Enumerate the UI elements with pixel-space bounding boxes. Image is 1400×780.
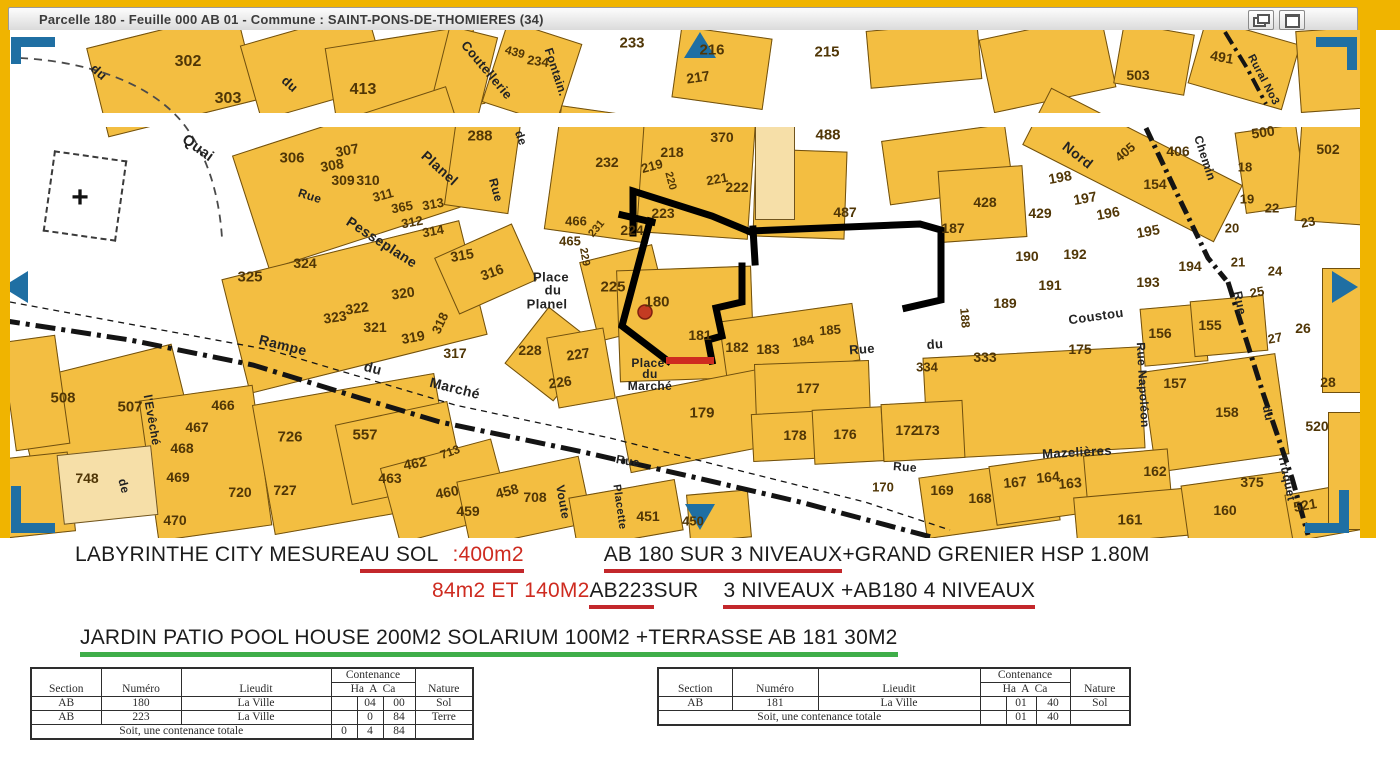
selected-parcel-outline [622, 215, 652, 222]
street-name-label: du [363, 359, 384, 377]
parcel-number-label: 156 [1148, 326, 1171, 340]
parcel-number-label: 508 [50, 391, 75, 406]
parcel-number-label: 18 [1238, 161, 1252, 174]
parcel-number-label: 161 [1117, 513, 1142, 528]
parcel-number-label: 488 [815, 128, 840, 143]
parcel-number-label: 187 [941, 221, 964, 235]
parcel-number-label: 324 [293, 256, 316, 270]
parcel-number-label: 169 [930, 483, 953, 497]
col-header-lieudit: Lieudit [181, 668, 331, 697]
parcel-number-label: 306 [279, 151, 304, 166]
parcel-number-label: 154 [1143, 177, 1166, 191]
parcel-number-label: 167 [1003, 474, 1027, 490]
parcel-number-label: 194 [1178, 259, 1201, 273]
table-cell: 04 [357, 697, 383, 711]
parcel-number-label: 158 [1215, 405, 1238, 419]
pan-arrow-left[interactable] [10, 271, 28, 303]
table-cell: 180 [101, 697, 181, 711]
parcel-number-label: 190 [1015, 249, 1038, 263]
col-header-contenance: Contenance [980, 668, 1070, 683]
parcel-number-label: 429 [1028, 206, 1051, 220]
footer-ha: 0 [331, 725, 357, 740]
selected-parcel-outline [753, 229, 755, 262]
parcel-number-label: 322 [344, 299, 369, 316]
restore-icon[interactable] [1248, 10, 1274, 30]
parcel-number-label: 232 [595, 155, 618, 169]
parcel-number-label: 462 [402, 454, 427, 472]
street-name-label: Rue [893, 460, 918, 474]
corner-marker [16, 486, 55, 528]
parcel-number-label: 319 [400, 328, 425, 346]
table-cell [331, 697, 357, 711]
parcel-number-label: 179 [689, 406, 714, 421]
parcel-number-label: 27 [1267, 330, 1284, 345]
title-bar: Parcelle 180 - Feuille 000 AB 01 - Commu… [8, 7, 1358, 32]
parcel-number-label: 470 [163, 513, 186, 527]
parcel-number-label: 164 [1036, 469, 1060, 485]
parcel-number-label: 507 [117, 400, 142, 415]
parcel-number-label: 198 [1047, 168, 1072, 186]
footer-nature [415, 725, 473, 740]
table-footer-row: Soit, une contenance totale0140 [658, 711, 1130, 726]
table-cell: 181 [732, 697, 818, 711]
table-cell: 01 [1006, 697, 1036, 711]
corner-marker [1316, 42, 1352, 70]
parcel-number-label: 708 [523, 490, 546, 504]
parcel-number-label: 173 [916, 423, 939, 437]
footer-ca: 40 [1036, 711, 1070, 726]
parcel-number-label: 520 [1305, 419, 1328, 433]
parcel-number-label: 162 [1143, 464, 1166, 478]
footer-a: 4 [357, 725, 383, 740]
parcel-number-label: 178 [783, 428, 806, 442]
footer-ca: 84 [383, 725, 415, 740]
parcel-number-label: 413 [350, 82, 377, 98]
annotation-line-2: 84m2 ET 140M2AB223 SUR 3 NIVEAUX +AB180 … [432, 579, 1035, 609]
street-name-label: Marché [628, 380, 672, 392]
annotation-line-1: LABYRINTHE CITY MESURE AU SOL:400m2AB 18… [75, 543, 1150, 573]
parcel-number-label: 720 [228, 485, 251, 499]
col-header-units: Ha A Ca [331, 683, 415, 697]
parcel-number-label: 557 [352, 428, 377, 443]
col-header-numero: Numéro [732, 668, 818, 697]
parcel-number-label: 21 [1231, 256, 1245, 269]
parcel-number-label: 193 [1136, 275, 1159, 289]
parcel-number-label: 502 [1316, 142, 1339, 156]
parcel-number-label: 467 [185, 420, 208, 434]
parcel-number-label: 182 [725, 340, 748, 354]
parcel-number-label: 317 [443, 346, 466, 360]
table-cell: 0 [357, 711, 383, 725]
parcel-number-label: 22 [1265, 202, 1279, 215]
parcel-number-label: 177 [796, 381, 819, 395]
parcel-number-label: 500 [1250, 123, 1275, 140]
parcel-number-label: 365 [390, 199, 414, 216]
parcel-number-label: 223 [651, 206, 674, 220]
col-header-nature: Nature [1070, 668, 1130, 697]
street-name-label: Rue [849, 342, 876, 357]
parcel-number-label: 197 [1072, 189, 1097, 207]
window-title: Parcelle 180 - Feuille 000 AB 01 - Commu… [39, 12, 544, 27]
parcel-number-label: 503 [1126, 68, 1149, 82]
cadastral-map[interactable]: +302303413439234233216217215503491288232… [10, 30, 1360, 538]
street-name-label: Planel [527, 298, 568, 311]
parcel-number-label: 180 [644, 295, 669, 310]
parcel-number-label: 491 [1209, 48, 1234, 66]
table-cell: La Ville [818, 697, 980, 711]
street-name-label: du [926, 337, 944, 351]
parcel-number-label: 163 [1058, 475, 1082, 491]
parcel-number-label: 227 [565, 345, 590, 362]
parcel-number-label: 160 [1213, 503, 1236, 517]
parcel-number-label: 26 [1295, 321, 1311, 335]
parcel-number-label: 323 [322, 308, 347, 325]
pan-arrow-right[interactable] [1332, 271, 1358, 303]
contenance-table: SectionNuméroLieuditContenanceNatureHa A… [657, 667, 1131, 726]
table-cell: AB [658, 697, 732, 711]
parcel-number-label: 192 [1063, 247, 1086, 261]
parcel-number-label: 333 [973, 350, 996, 364]
table-cell: 223 [101, 711, 181, 725]
contenance-table: SectionNuméroLieuditContenanceNatureHa A… [30, 667, 474, 740]
parcel-number-label: 451 [636, 509, 659, 523]
table-row: AB223La Ville084Terre [31, 711, 473, 725]
table-cell: 00 [383, 697, 415, 711]
street-name-label: Rue [615, 453, 641, 469]
col-header-units: Ha A Ca [980, 683, 1070, 697]
annotation-line-3: JARDIN PATIO POOL HOUSE 200M2 SOLARIUM 1… [80, 626, 898, 657]
parcel-number-label: 309 [331, 173, 354, 187]
col-header-nature: Nature [415, 668, 473, 697]
parcel-number-label: 334 [916, 361, 938, 374]
parcel-number-label: 315 [449, 246, 474, 264]
parcel-number-label: 468 [170, 441, 193, 455]
parcel-number-label: 466 [565, 215, 587, 228]
parcel-number-label: 155 [1198, 318, 1221, 332]
parcel-number-label: 25 [1249, 284, 1266, 299]
parcel-number-label: 183 [756, 342, 779, 356]
parcel-number-label: 487 [833, 205, 856, 219]
table-cell: Sol [1070, 697, 1130, 711]
red-highlight-segment [666, 357, 714, 364]
parcel-number-label: 226 [547, 373, 572, 390]
parcel-number-label: 195 [1135, 222, 1160, 240]
footer-a: 01 [1006, 711, 1036, 726]
selected-parcel-outline [622, 221, 668, 361]
parcel-number-label: 375 [1240, 475, 1263, 489]
parcel-number-label: 189 [993, 296, 1016, 310]
table-row: AB181La Ville0140Sol [658, 697, 1130, 711]
table-footer-row: Soit, une contenance totale0484 [31, 725, 473, 740]
parcel-number-label: 19 [1240, 193, 1254, 206]
street-name-label: Mazelières [1042, 444, 1112, 461]
selected-parcel-outline [750, 224, 941, 308]
parcel-number-label: 225 [600, 280, 625, 295]
map-frame-left [0, 30, 10, 538]
parcel-number-label: 313 [421, 196, 445, 213]
parcel-number-label: 185 [819, 323, 842, 338]
col-header-section: Section [658, 668, 732, 697]
parcel-number-label: 469 [166, 470, 189, 484]
parcel-number-label: 320 [390, 284, 415, 301]
application-window: { "title_bar": { "title": "Parcelle 180 … [0, 0, 1400, 780]
footer-nature [1070, 711, 1130, 726]
parcel-number-label: 314 [421, 223, 445, 240]
table-cell [980, 697, 1006, 711]
street-name-label: du [545, 284, 562, 297]
parcel-number-label: 20 [1225, 222, 1239, 235]
parcel-number-label: 196 [1095, 204, 1120, 222]
table-cell: Terre [415, 711, 473, 725]
parcel-number-label: 191 [1038, 278, 1061, 292]
footer-label: Soit, une contenance totale [31, 725, 331, 740]
parcel-number-label: 406 [1166, 144, 1189, 158]
col-header-contenance: Contenance [331, 668, 415, 683]
parcel-number-label: 450 [682, 515, 704, 528]
parcel-number-label: 224 [620, 223, 643, 237]
parcel-number-label: 181 [688, 328, 711, 342]
map-frame-right [1360, 30, 1376, 538]
parcel-number-label: 170 [872, 481, 894, 494]
table-cell: 84 [383, 711, 415, 725]
parcel-number-label: 726 [277, 430, 302, 445]
parcel-number-label: 303 [215, 91, 242, 107]
footer-label: Soit, une contenance totale [658, 711, 980, 726]
parcel-number-label: 370 [710, 130, 733, 144]
table-cell: Sol [415, 697, 473, 711]
col-header-section: Section [31, 668, 101, 697]
table-cell [331, 711, 357, 725]
parcel-number-label: 176 [833, 427, 856, 441]
table-cell: 40 [1036, 697, 1070, 711]
col-header-lieudit: Lieudit [818, 668, 980, 697]
parcel-number-label: 459 [456, 504, 479, 518]
parcel-number-label: 312 [400, 214, 424, 231]
parcel-number-label: 28 [1320, 375, 1336, 389]
parcel-number-label: 229 [577, 247, 591, 267]
parcel-number-label: 748 [75, 471, 98, 485]
parcel-number-label: 228 [518, 343, 541, 357]
table-cell: La Ville [181, 711, 331, 725]
parcel-number-label: 172 [895, 423, 918, 437]
parcel-number-label: 23 [1300, 214, 1317, 229]
footer-ha [980, 711, 1006, 726]
parcel-number-label: 157 [1163, 376, 1186, 390]
street-name-label: de [116, 477, 131, 494]
parcel-number-label: 465 [559, 235, 581, 248]
parcel-number-label: 428 [973, 195, 996, 209]
parcel-number-label: 175 [1068, 342, 1091, 356]
parcel-number-label: 325 [237, 270, 262, 285]
parcel-number-label: 727 [273, 483, 296, 497]
table-cell: AB [31, 711, 101, 725]
parcel-number-label: 216 [699, 43, 724, 58]
table-row: AB180La Ville0400Sol [31, 697, 473, 711]
parcel-number-label: 463 [378, 471, 401, 485]
parcel-number-label: 215 [814, 45, 839, 60]
parcel-number-label: 460 [434, 483, 459, 501]
parcel-number-label: 168 [968, 491, 991, 505]
parcel-number-label: 188 [958, 307, 972, 328]
maximize-icon[interactable] [1279, 10, 1305, 30]
parcel-number-label: 233 [619, 36, 644, 51]
parcel-number-label: 217 [685, 68, 710, 85]
parcel-number-label: 218 [660, 145, 683, 159]
parcel-number-label: 222 [725, 180, 748, 194]
table-cell: La Ville [181, 697, 331, 711]
parcel-number-label: 321 [363, 320, 386, 334]
table-cell: AB [31, 697, 101, 711]
parcel-number-label: 310 [356, 173, 379, 187]
parcel-number-label: 184 [791, 333, 815, 350]
parcel-number-label: 288 [467, 129, 492, 144]
parcel-number-label: 24 [1268, 265, 1282, 278]
parcel-number-label: 302 [175, 54, 202, 70]
parcel-number-label: 466 [211, 398, 234, 412]
col-header-numero: Numéro [101, 668, 181, 697]
street-name-label: du [1261, 404, 1276, 422]
